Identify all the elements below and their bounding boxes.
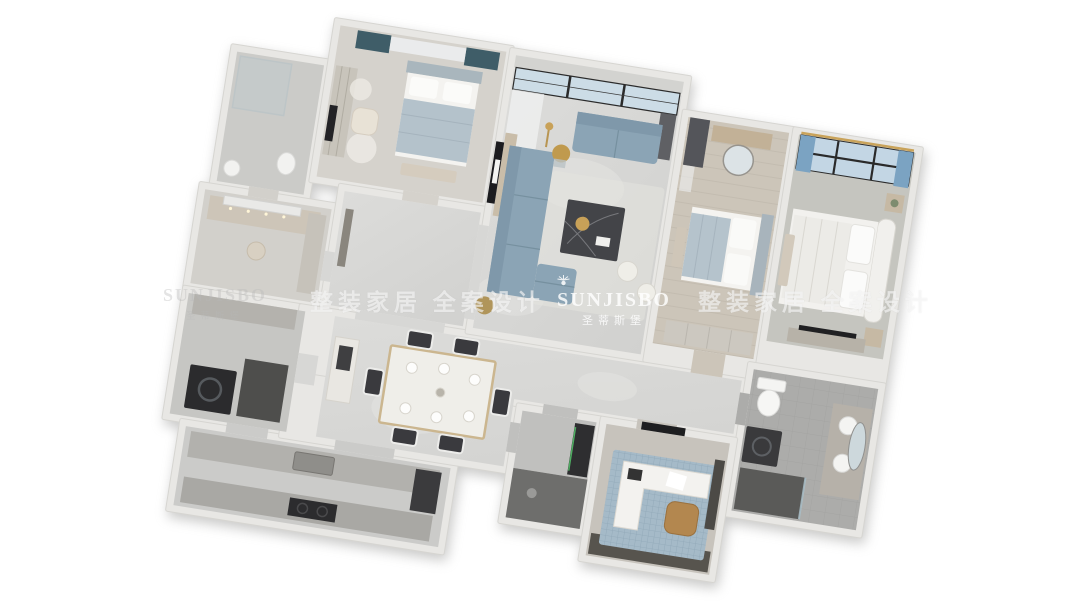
dark-counter — [236, 359, 289, 423]
tan-chair — [663, 501, 700, 538]
coffee-table — [560, 199, 626, 261]
nightstand-2 — [863, 327, 884, 348]
floorplan-svg — [0, 0, 1080, 608]
lounge-chair — [350, 107, 380, 137]
glass-shower — [232, 56, 291, 115]
bed — [778, 205, 897, 324]
floorplan-render: SUNJISBO 圣蒂斯堡 整装家居 全案设计 SUNJISBO 圣蒂斯堡 整装… — [0, 0, 1080, 608]
washing-machine — [184, 364, 237, 415]
washing-machine — [741, 426, 782, 467]
rotated-plan — [148, 1, 930, 608]
